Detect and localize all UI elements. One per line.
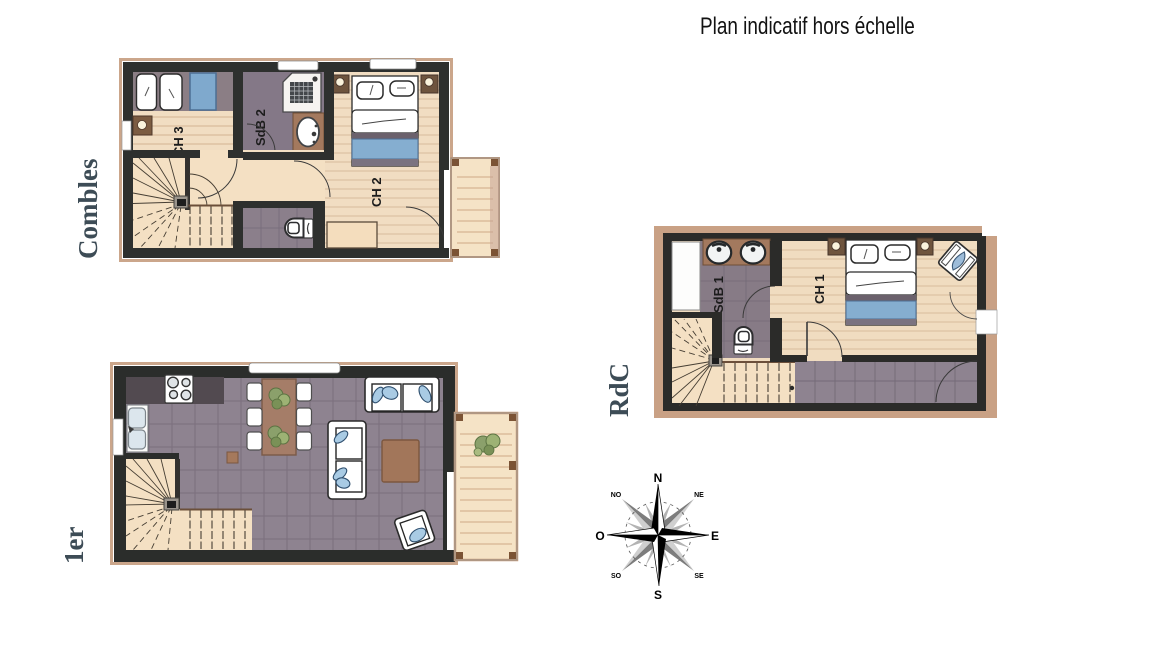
- svg-text:CH 1: CH 1: [812, 274, 827, 304]
- svg-text:SE: SE: [694, 573, 704, 580]
- svg-text:Combles: Combles: [73, 159, 103, 260]
- svg-text:O: O: [595, 529, 604, 543]
- svg-text:SdB 1: SdB 1: [711, 276, 726, 313]
- svg-text:NE: NE: [694, 492, 704, 499]
- svg-text:E: E: [711, 529, 719, 543]
- svg-text:SO: SO: [611, 573, 622, 580]
- svg-text:RdC: RdC: [604, 363, 634, 417]
- svg-text:S: S: [654, 588, 662, 602]
- svg-text:CH 2: CH 2: [369, 177, 384, 207]
- svg-text:N: N: [654, 471, 663, 485]
- svg-text:1er: 1er: [59, 527, 89, 564]
- svg-text:Plan indicatif hors échelle: Plan indicatif hors échelle: [700, 12, 915, 40]
- svg-text:NO: NO: [611, 492, 622, 499]
